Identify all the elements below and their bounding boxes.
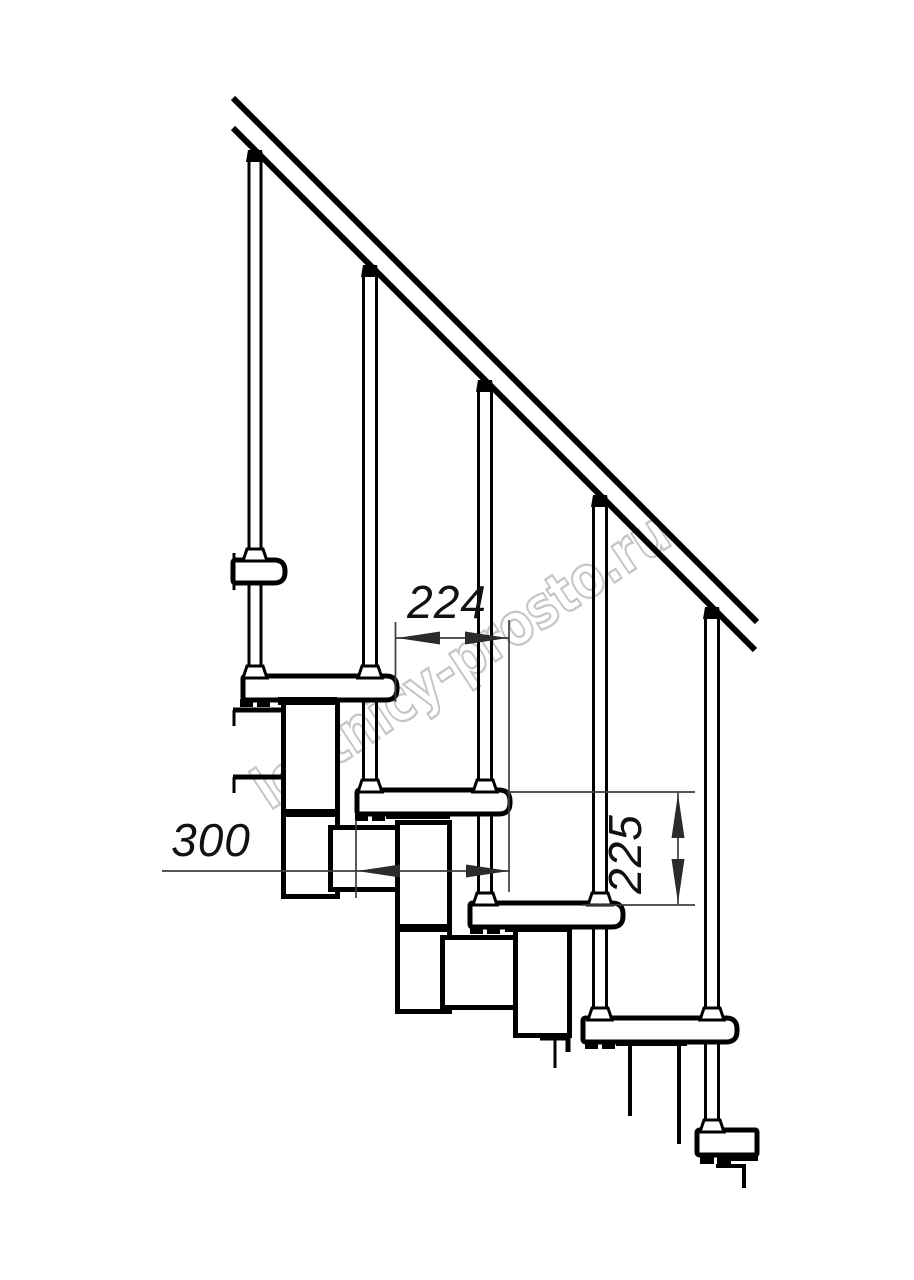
rail-connector: [591, 495, 609, 507]
rod-flange: [358, 780, 382, 792]
rod-nut: [585, 1041, 598, 1049]
module-chain: [233, 701, 744, 1189]
handrail-bottom-line: [233, 128, 755, 650]
landing-bracket: [233, 549, 285, 590]
under-tread-strip: [386, 812, 450, 819]
module-rect: [331, 828, 403, 890]
arrowhead-down: [672, 859, 685, 903]
tread-1: [243, 676, 397, 700]
dimension-label-going: 224: [406, 576, 487, 628]
under-tread-strip: [278, 697, 337, 705]
tread-5: [697, 1130, 757, 1155]
tread-3: [470, 903, 623, 927]
rod-flange: [243, 549, 267, 561]
rod-nut: [487, 926, 500, 934]
technical-drawing-page: lestnicy-prosto.ru: [0, 0, 914, 1280]
rod-nut: [355, 813, 368, 821]
arrowhead-up: [672, 794, 685, 838]
rod-flange: [588, 1008, 612, 1020]
rail-connector: [703, 607, 721, 619]
under-tread-strip: [616, 1040, 687, 1046]
under-tread-strip: [731, 1155, 758, 1161]
rod-nut: [717, 1156, 731, 1164]
baluster-1: [249, 156, 261, 667]
rod-flange: [473, 780, 497, 792]
rail-connector: [361, 265, 379, 277]
dimension-label-tread-depth: 300: [171, 814, 251, 866]
tread-4: [583, 1018, 737, 1042]
rod-nut: [700, 1156, 714, 1164]
rail-connector: [246, 150, 264, 162]
arrowhead-left: [397, 632, 440, 645]
rod-nut: [257, 699, 270, 707]
rod-flange: [700, 1008, 724, 1020]
staircase-drawing: lestnicy-prosto.ru: [0, 0, 914, 1280]
under-tread-strip: [505, 925, 570, 932]
handrail-top-line: [233, 98, 757, 622]
rod-flange: [700, 1120, 724, 1132]
break-line: [716, 1166, 744, 1188]
rail-connector: [476, 380, 494, 392]
module-rect: [398, 823, 450, 927]
module-rect: [443, 938, 518, 1008]
handrail: [233, 98, 757, 650]
module-rect: [284, 701, 338, 812]
rod-flange: [473, 893, 497, 905]
bracket-body: [233, 560, 285, 583]
module-rect: [516, 929, 570, 1036]
dimension-rise-225: 225: [507, 792, 695, 905]
tread-2: [357, 790, 510, 814]
dimension-label-rise: 225: [599, 814, 651, 895]
rod-nut: [240, 699, 253, 707]
arrowhead-right: [466, 865, 509, 878]
rod-flange: [358, 666, 382, 678]
baluster-5: [706, 613, 719, 1121]
rod-nut: [470, 926, 483, 934]
rod-nut: [602, 1041, 615, 1049]
rod-nut: [372, 813, 385, 821]
rod-flange: [243, 666, 267, 678]
